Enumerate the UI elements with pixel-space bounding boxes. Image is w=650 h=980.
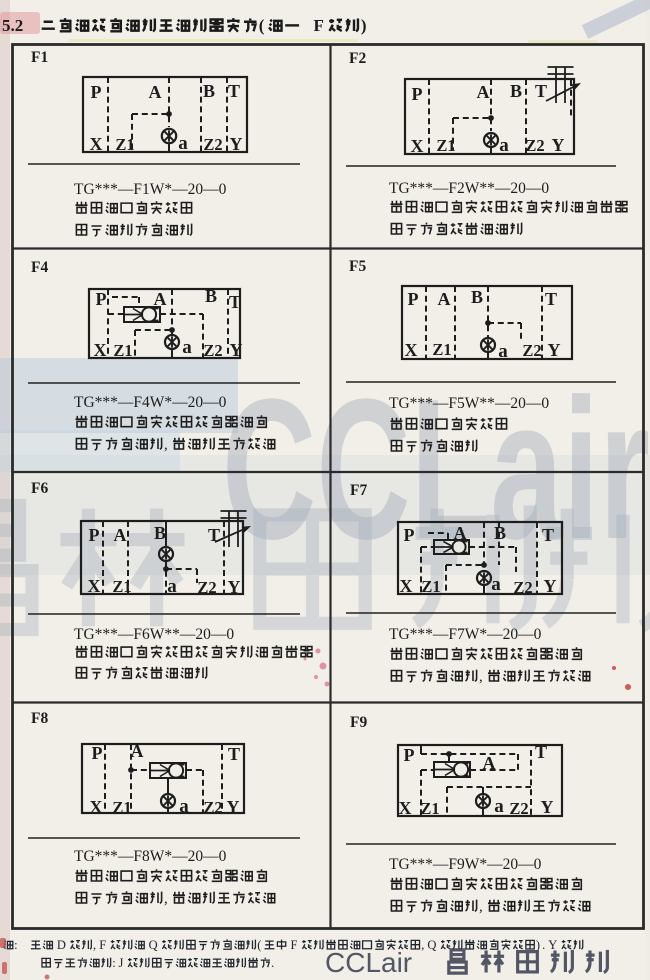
svg-text:TG***—F7W*—20—0: TG***—F7W*—20—0 — [389, 626, 542, 643]
svg-text:Y: Y — [230, 340, 243, 360]
svg-text:F5: F5 — [349, 258, 366, 275]
svg-text:TG***—F1W*—20—0: TG***—F1W*—20—0 — [74, 181, 227, 198]
svg-text:P: P — [89, 525, 100, 545]
svg-text:X: X — [90, 134, 103, 154]
svg-text:Y: Y — [541, 797, 554, 817]
svg-text:P: P — [96, 289, 107, 309]
svg-text:A: A — [154, 289, 167, 309]
svg-text:F4: F4 — [31, 259, 48, 276]
svg-text:B: B — [471, 287, 483, 307]
svg-text:X: X — [88, 576, 101, 596]
svg-text:P: P — [404, 745, 415, 765]
svg-text:A: A — [131, 741, 144, 761]
svg-text::: : — [14, 938, 17, 952]
svg-text:B: B — [494, 523, 506, 543]
svg-text:Z2: Z2 — [525, 136, 544, 155]
svg-text:,: , — [164, 891, 168, 907]
svg-text:A: A — [149, 82, 162, 102]
svg-text:Y: Y — [552, 135, 565, 155]
svg-text:Z2: Z2 — [509, 799, 528, 818]
svg-text:T: T — [228, 744, 240, 764]
svg-text:T: T — [545, 289, 557, 309]
svg-text:J: J — [119, 956, 127, 970]
svg-text:TG***—F4W*—20—0: TG***—F4W*—20—0 — [74, 394, 227, 411]
svg-text:Z1: Z1 — [421, 577, 440, 596]
svg-text:B: B — [205, 286, 217, 306]
svg-text:a: a — [491, 574, 501, 595]
svg-text:,: , — [421, 938, 424, 952]
svg-text:X: X — [90, 797, 103, 817]
svg-text:F2: F2 — [349, 50, 366, 67]
svg-text:P: P — [408, 289, 419, 309]
svg-text:Z1: Z1 — [113, 341, 132, 360]
svg-text:X: X — [411, 136, 424, 156]
svg-text:.: . — [542, 938, 545, 952]
svg-text:F6: F6 — [31, 480, 48, 497]
svg-text:Z1: Z1 — [112, 577, 131, 596]
svg-text:A: A — [114, 525, 127, 545]
svg-text:T: T — [542, 525, 554, 545]
svg-text:,: , — [479, 899, 483, 915]
svg-text:TG***—F5W**—20—0: TG***—F5W**—20—0 — [389, 395, 549, 412]
svg-text:Z2: Z2 — [203, 135, 222, 154]
svg-text:Z2: Z2 — [203, 341, 222, 360]
svg-text:): ) — [536, 938, 540, 952]
svg-text:a: a — [182, 337, 192, 358]
svg-text:.: . — [271, 956, 274, 970]
svg-text:T: T — [535, 742, 547, 762]
svg-text:T: T — [208, 525, 220, 545]
svg-text:a: a — [179, 796, 189, 817]
svg-text::: : — [112, 956, 115, 970]
svg-text:B: B — [510, 81, 522, 101]
svg-text:A: A — [483, 753, 496, 773]
svg-text:F9: F9 — [350, 714, 367, 731]
svg-text:Y: Y — [228, 577, 241, 597]
svg-text:X: X — [399, 798, 412, 818]
svg-text:,: , — [479, 669, 483, 685]
svg-text:A: A — [438, 289, 451, 309]
svg-text:,: , — [164, 437, 168, 453]
svg-text:a: a — [498, 341, 508, 362]
svg-text:Y: Y — [227, 797, 240, 817]
svg-text:F: F — [301, 16, 328, 35]
svg-text:Z2: Z2 — [197, 578, 216, 597]
svg-text:B: B — [203, 81, 215, 101]
svg-text:a: a — [494, 796, 504, 817]
svg-text:T: T — [229, 292, 241, 312]
svg-text:,: , — [93, 938, 96, 952]
svg-text:Z1: Z1 — [436, 136, 455, 155]
svg-text:Y: Y — [548, 340, 561, 360]
svg-text:P: P — [91, 82, 102, 102]
svg-text:Z1: Z1 — [432, 340, 451, 359]
svg-text:a: a — [178, 133, 188, 154]
svg-text:F: F — [99, 938, 109, 952]
svg-text:X: X — [405, 340, 418, 360]
svg-text:Q: Q — [427, 938, 439, 952]
svg-text:TG***—F8W*—20—0: TG***—F8W*—20—0 — [74, 848, 227, 865]
svg-text:D: D — [54, 938, 69, 952]
svg-text:P: P — [404, 525, 415, 545]
svg-text:Z2: Z2 — [522, 341, 541, 360]
svg-text:F7: F7 — [350, 482, 367, 499]
svg-text:Z1: Z1 — [112, 798, 131, 817]
svg-text:Z1: Z1 — [420, 799, 439, 818]
svg-text:CCLair: CCLair — [325, 947, 412, 978]
svg-text:(: ( — [259, 16, 265, 35]
svg-text:Y: Y — [548, 938, 560, 952]
svg-text:TG***—F2W**—20—0: TG***—F2W**—20—0 — [389, 180, 549, 197]
svg-text:P: P — [92, 743, 103, 763]
svg-text:Z2: Z2 — [513, 578, 532, 597]
svg-text:F1: F1 — [31, 49, 48, 66]
svg-text:a: a — [167, 576, 177, 597]
svg-text:TG***—F9W*—20—0: TG***—F9W*—20—0 — [389, 856, 542, 873]
svg-text:X: X — [94, 340, 107, 360]
svg-text:Z2: Z2 — [203, 798, 222, 817]
svg-text:P: P — [412, 84, 423, 104]
svg-text:Q: Q — [146, 938, 161, 952]
svg-text:5.2: 5.2 — [2, 16, 23, 35]
svg-text:Z1: Z1 — [115, 135, 134, 154]
svg-text:X: X — [400, 576, 413, 596]
svg-text:F8: F8 — [31, 710, 48, 727]
svg-text:A: A — [477, 82, 490, 102]
svg-text:B: B — [154, 523, 166, 543]
svg-text:F: F — [287, 938, 300, 952]
svg-text:a: a — [499, 135, 509, 156]
svg-text:(: ( — [257, 938, 261, 952]
svg-text:A: A — [454, 523, 467, 543]
svg-text:T: T — [535, 81, 547, 101]
svg-text:): ) — [361, 16, 367, 35]
svg-text:T: T — [228, 81, 240, 101]
svg-text:Y: Y — [544, 576, 557, 596]
svg-text:Y: Y — [230, 134, 243, 154]
svg-text:TG***—F6W**—20—0: TG***—F6W**—20—0 — [74, 626, 234, 643]
